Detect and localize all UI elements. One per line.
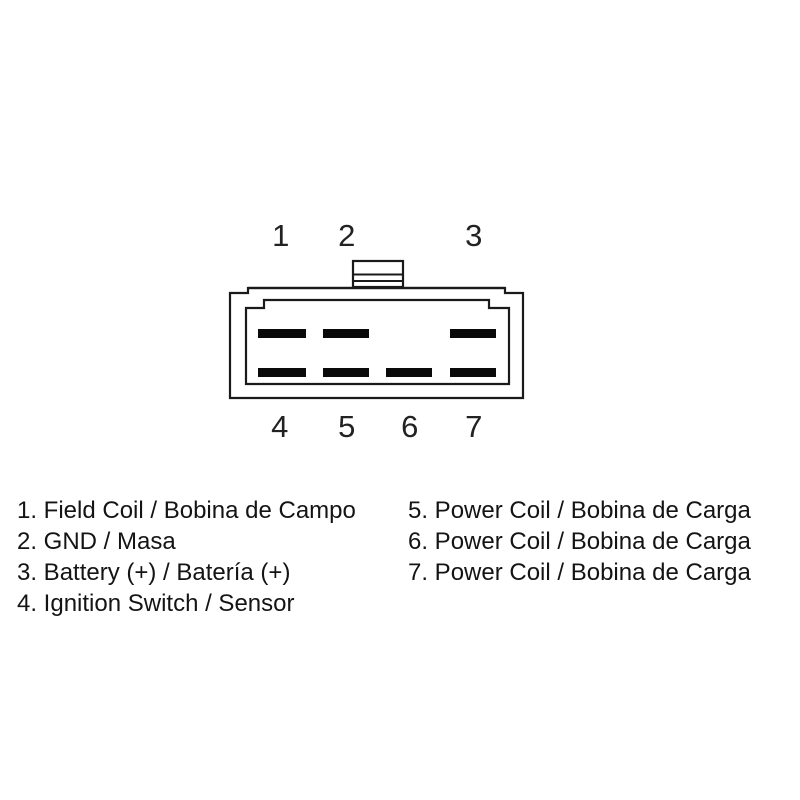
legend-item-pin-5: 5. Power Coil / Bobina de Carga xyxy=(408,495,751,526)
legend-item-pin-3: 3. Battery (+) / Batería (+) xyxy=(17,557,356,588)
legend-item-pin-1: 1. Field Coil / Bobina de Campo xyxy=(17,495,356,526)
pin-label-4: 4 xyxy=(271,409,289,445)
pin-label-3: 3 xyxy=(465,218,483,254)
pin-label-6: 6 xyxy=(401,409,419,445)
pin-label-5: 5 xyxy=(338,409,356,445)
legend-item-pin-2: 2. GND / Masa xyxy=(17,526,356,557)
pin-5-contact xyxy=(323,368,369,377)
pin-7-contact xyxy=(450,368,496,377)
pin-4-contact xyxy=(258,368,306,377)
connector-diagram xyxy=(0,0,800,800)
legend-right-column: 5. Power Coil / Bobina de Carga 6. Power… xyxy=(408,495,751,588)
pin-label-7: 7 xyxy=(465,409,483,445)
pin-3-contact xyxy=(450,329,496,338)
pinout-diagram-canvas: 1 2 3 4 5 6 7 1. Field Coil / Bobina de … xyxy=(0,0,800,800)
pin-label-1: 1 xyxy=(272,218,290,254)
legend-left-column: 1. Field Coil / Bobina de Campo 2. GND /… xyxy=(17,495,356,619)
legend-item-pin-6: 6. Power Coil / Bobina de Carga xyxy=(408,526,751,557)
legend-item-pin-4: 4. Ignition Switch / Sensor xyxy=(17,588,356,619)
pin-1-contact xyxy=(258,329,306,338)
pin-label-2: 2 xyxy=(338,218,356,254)
pin-6-contact xyxy=(386,368,432,377)
legend-item-pin-7: 7. Power Coil / Bobina de Carga xyxy=(408,557,751,588)
pin-2-contact xyxy=(323,329,369,338)
